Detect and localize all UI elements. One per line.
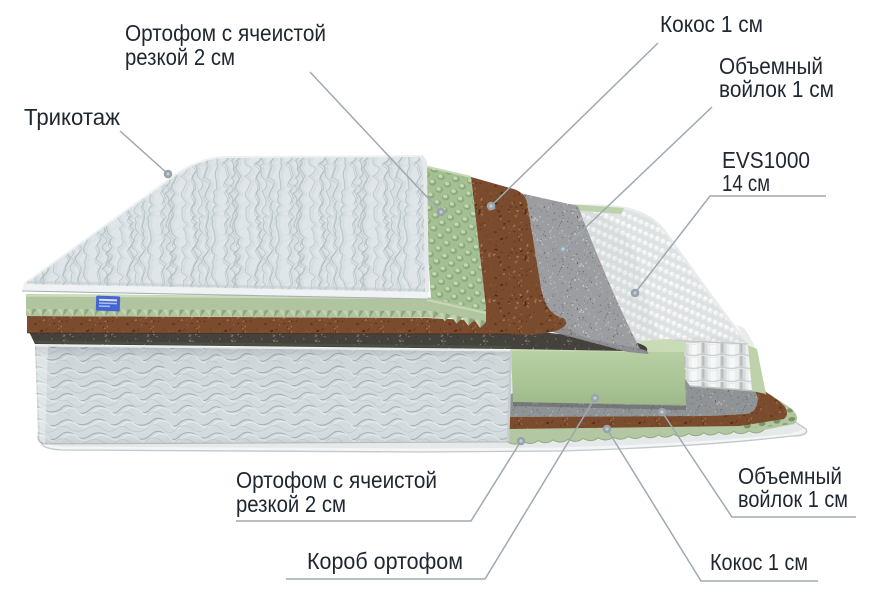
svg-text:Трикотаж: Трикотаж [24,104,120,130]
svg-text:резкой 2 см: резкой 2 см [236,491,346,517]
svg-text:Кокос 1 см: Кокос 1 см [710,549,808,575]
svg-text:войлок 1 см: войлок 1 см [719,76,834,102]
svg-text:Ортофом с ячеистой: Ортофом с ячеистой [236,467,437,493]
svg-text:Кокос 1 см: Кокос 1 см [660,11,763,37]
svg-text:войлок 1 см: войлок 1 см [738,486,848,512]
svg-text:14 см: 14 см [722,170,770,196]
svg-text:Короб ортофом: Короб ортофом [307,548,463,574]
svg-text:Ортофом с ячеистой: Ортофом с ячеистой [125,20,326,46]
svg-text:резкой 2 см: резкой 2 см [125,44,235,70]
